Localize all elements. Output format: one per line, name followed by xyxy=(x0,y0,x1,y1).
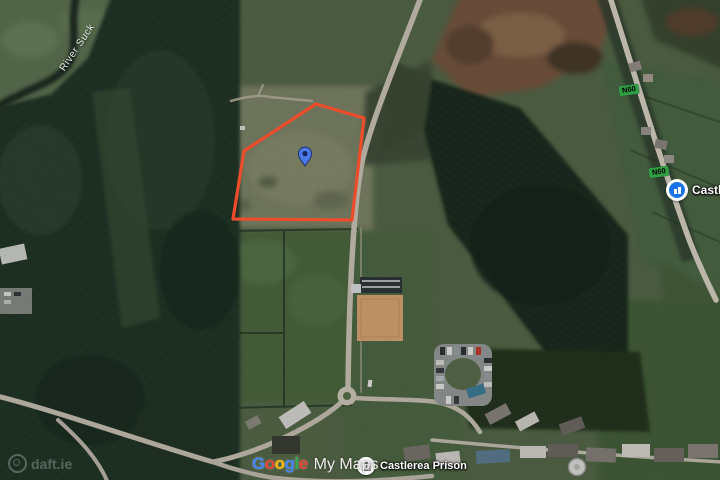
daft-watermark: daft.ie xyxy=(8,454,72,473)
castlerea-town-label: Castlerea xyxy=(666,179,720,201)
google-letter: e xyxy=(299,454,308,473)
satellite-map[interactable] xyxy=(0,0,720,480)
google-letter: o xyxy=(275,454,285,473)
buildings-icon xyxy=(673,186,682,195)
daft-text: daft.ie xyxy=(31,456,72,472)
google-letter: o xyxy=(265,454,275,473)
my-maps-text: My Maps xyxy=(314,456,379,474)
google-logo[interactable]: Google xyxy=(252,454,308,474)
satellite-map-screenshot: { "map": { "kind": "satellite", "labels"… xyxy=(0,0,720,480)
google-my-maps-watermark[interactable]: Google My Maps xyxy=(252,454,379,474)
google-letter: g xyxy=(285,454,295,473)
castlerea-town-text: Castlerea xyxy=(692,183,720,197)
google-letter: G xyxy=(252,454,265,473)
satellite-grain xyxy=(0,0,720,480)
place-pin-circle xyxy=(669,182,685,198)
castlerea-place-icon xyxy=(666,179,688,201)
marker-pin-dot xyxy=(302,151,307,156)
daft-logo-icon xyxy=(8,454,27,473)
castlerea-prison-text: Castlerea Prison xyxy=(380,460,467,472)
